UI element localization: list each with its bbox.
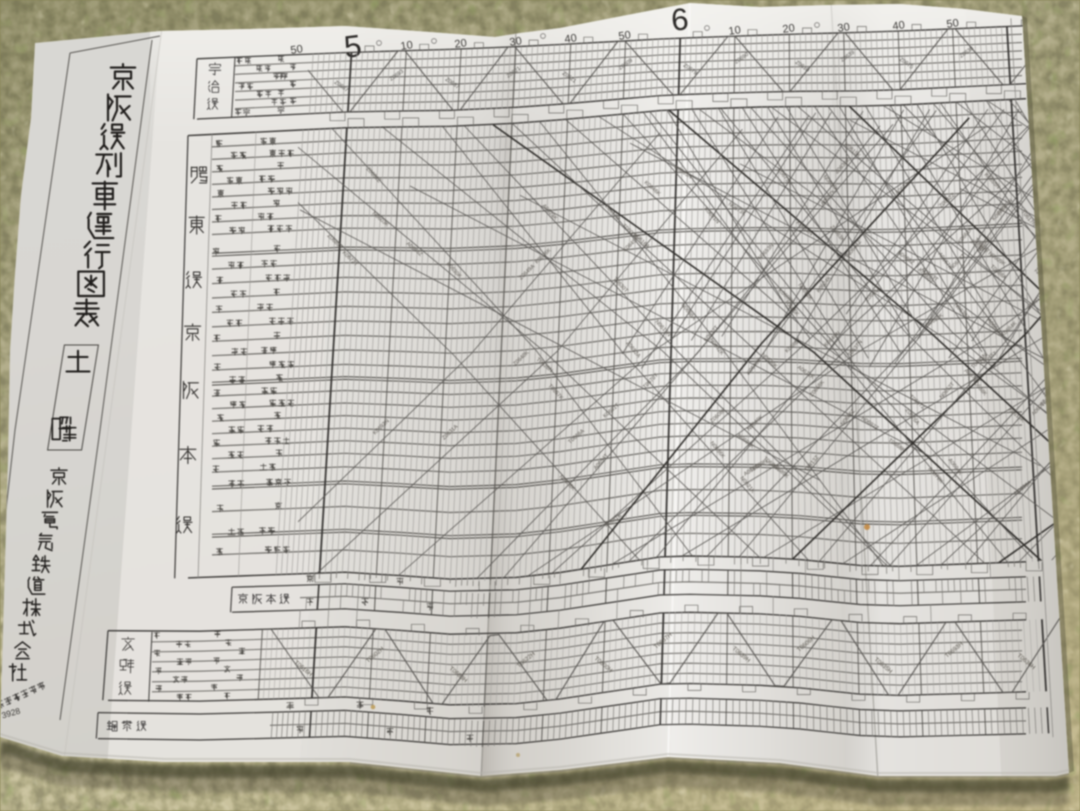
svg-text:6: 6 [670, 1, 690, 37]
